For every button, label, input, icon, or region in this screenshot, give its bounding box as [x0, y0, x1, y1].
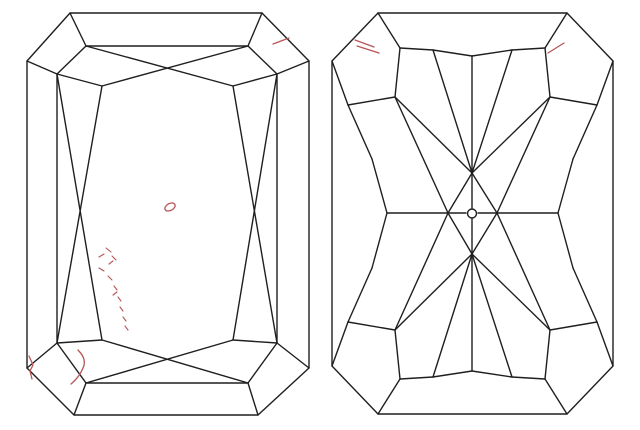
pavilion-view-facet-line [558, 159, 573, 213]
pavilion-view-facet-line [558, 213, 573, 268]
pavilion-view-facet-line [472, 371, 512, 377]
crown-view-facet-line [248, 383, 258, 415]
inclusion-cloud-trail-dash [113, 292, 117, 295]
inclusion-crystal [164, 201, 177, 212]
crown-view-facet-line [102, 46, 248, 86]
pavilion-view-facet-line [472, 213, 497, 254]
crown-view-facet-line [70, 13, 86, 46]
pavilion-view-facet-line [448, 173, 472, 213]
crown-view-inclusion-marks [29, 38, 289, 384]
pavilion-view-facet-line [378, 13, 400, 48]
pavilion-view-facet-line [512, 377, 545, 379]
pavilion-view-facet-line [472, 173, 497, 213]
pavilion-view-facet-line [400, 48, 433, 50]
crown-view-table-outline [57, 46, 277, 383]
crown-view-facet-line [57, 74, 102, 340]
pavilion-view-facet-line [472, 254, 512, 377]
pavilion-view-facet-line [573, 105, 597, 159]
pavilion-view-facet-line [497, 97, 550, 213]
diamond-plot-page [0, 0, 640, 430]
pavilion-view-facet-line [332, 322, 348, 366]
crown-view-facet-line [57, 340, 102, 343]
pavilion-view-facet-line [545, 48, 550, 97]
pavilion-view-facet-line [545, 330, 550, 379]
crown-view-facet-line [27, 61, 57, 74]
inclusion-cloud-trail-dash [118, 297, 121, 301]
pavilion-view-facet-line [448, 213, 472, 254]
pavilion-view-facet-line [433, 371, 472, 377]
pavilion-view-facet-line [332, 61, 348, 105]
crown-view-girdle-outline [27, 13, 309, 415]
pavilion-view-facet-line [550, 322, 597, 330]
crown-view-facet-line [86, 340, 233, 383]
pavilion-view-facet-line [550, 97, 597, 105]
crown-view-facet-line [57, 74, 102, 86]
pavilion-view-facet-line [378, 379, 400, 414]
pavilion-view-facet-line [433, 50, 472, 56]
crown-view-facet-line [86, 46, 233, 86]
crown-view-facet-line [277, 61, 309, 74]
pavilion-view-facet-line [597, 322, 613, 366]
inclusion-cloud-trail-dash [109, 261, 113, 264]
inclusion-needle [273, 38, 289, 44]
pavilion-view-facet-line [545, 379, 567, 414]
pavilion-view-facet-line [395, 48, 400, 97]
pavilion-view-facet-line [472, 50, 512, 173]
pavilion-view-culet [468, 209, 477, 218]
inclusion-tick-upper-left-2 [357, 46, 379, 53]
pavilion-view-facet-line [348, 268, 372, 322]
inclusion-cloud-trail-dash [125, 326, 128, 330]
pavilion-view-plot [332, 13, 613, 414]
crown-view-facet-line [233, 74, 277, 340]
pavilion-view-facet-line [372, 213, 387, 268]
inclusion-cloud-trail-dash [99, 254, 104, 257]
crown-view-facet-line [277, 343, 309, 368]
pavilion-view-facet-line [348, 105, 372, 159]
inclusion-cloud-trail-dash [106, 248, 111, 252]
pavilion-view-facet-line [348, 97, 395, 105]
crown-view-facet-line [248, 13, 262, 46]
pavilion-view-facet-line [573, 268, 597, 322]
pavilion-view-facet-line [497, 213, 550, 330]
inclusion-cloud-trail-dash [112, 256, 116, 260]
crown-view-plot [27, 13, 309, 415]
pavilion-view-facet-line [395, 97, 448, 213]
crown-view-facet-line [74, 383, 86, 415]
pavilion-view-facet-line [395, 330, 400, 379]
pavilion-view-inclusion-marks [355, 40, 564, 53]
crown-view-facet-line [233, 86, 277, 343]
pavilion-view-facet-line [597, 61, 613, 105]
pavilion-view-facet-line [348, 322, 395, 330]
pavilion-view-facet-line [400, 377, 433, 379]
inclusion-cloud-trail-dash [120, 307, 123, 311]
inclusion-cloud-trail-dash [114, 286, 117, 290]
inclusion-cloud-trail-dash [123, 317, 126, 321]
crown-view-facet-line [233, 74, 277, 86]
crown-view-facet-line [102, 340, 248, 383]
crown-view-facet-line [233, 340, 277, 343]
inclusion-cloud-trail-dash [108, 276, 112, 280]
inclusion-tick-upper-right [548, 43, 564, 53]
inclusion-cloud-trail-dash [99, 268, 104, 271]
inclusion-corner-feather [29, 356, 33, 379]
pavilion-view-facet-line [472, 50, 512, 56]
crown-view-facet-line [27, 343, 57, 368]
diamond-plot-canvas [0, 0, 640, 430]
pavilion-view-facet-line [512, 48, 545, 50]
pavilion-view-facet-line [395, 213, 448, 330]
pavilion-view-facet-line [372, 159, 387, 213]
crown-view-facet-line [57, 86, 102, 343]
